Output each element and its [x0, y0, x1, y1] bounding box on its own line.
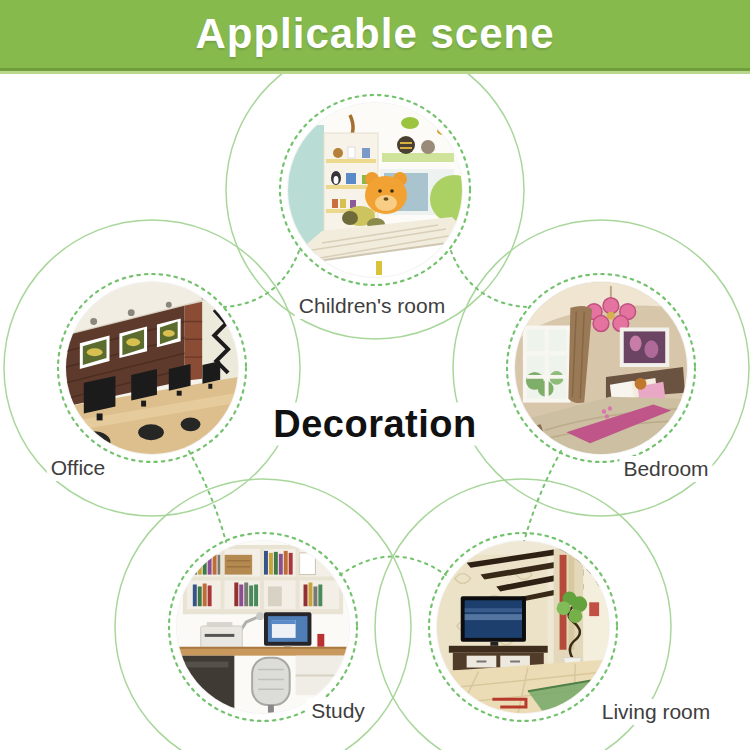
- scene-office: [66, 282, 238, 454]
- scene-living-room: [437, 541, 609, 713]
- scene-bedroom: [515, 282, 687, 454]
- center-title: Decoration: [265, 403, 484, 446]
- living-room-photo: [437, 541, 609, 713]
- bear-plush: [365, 172, 407, 214]
- label-study: Study: [307, 698, 369, 724]
- banner: Applicable scene: [0, 0, 750, 68]
- scene-study: [177, 541, 349, 713]
- bee-plush: [397, 136, 415, 154]
- banner-edge-light: [0, 71, 750, 74]
- desk: [177, 648, 349, 656]
- wall-art: [620, 327, 669, 367]
- office-photo: [66, 282, 238, 454]
- label-children-room: Children's room: [295, 293, 449, 319]
- study-photo: [177, 541, 349, 713]
- bedroom-photo: [515, 282, 687, 454]
- children-room-photo: [288, 103, 462, 277]
- label-living-room: Living room: [598, 699, 715, 725]
- tv: [461, 596, 526, 645]
- banner-title: Applicable scene: [0, 0, 750, 68]
- window: [523, 325, 570, 402]
- label-bedroom: Bedroom: [619, 456, 712, 482]
- scene-children-room: [288, 103, 462, 277]
- label-office: Office: [47, 455, 109, 481]
- printer: [201, 622, 243, 648]
